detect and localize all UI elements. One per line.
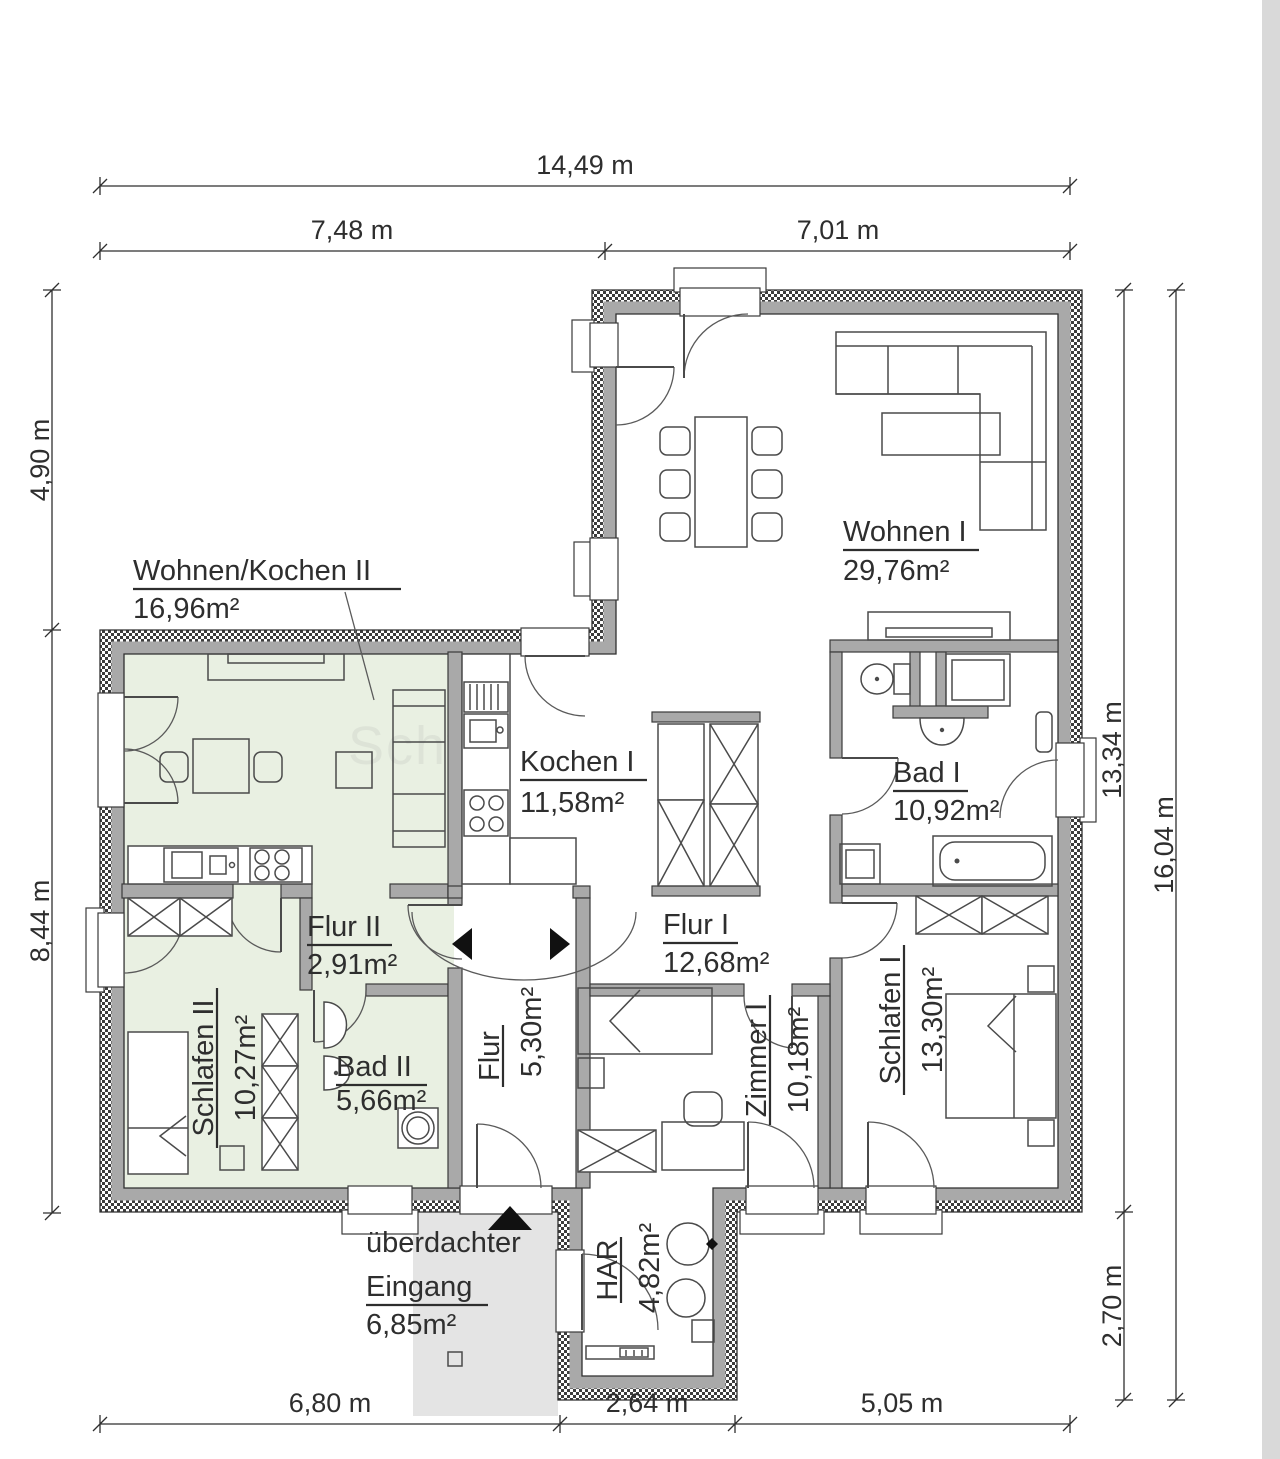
nightstand	[1028, 1120, 1054, 1146]
room-area-flur: 5,30m²	[516, 987, 548, 1078]
coffee-table	[882, 413, 1000, 455]
room-area-wohnen-1: 29,76m²	[843, 555, 950, 587]
utility-box	[692, 1320, 714, 1342]
room-label-bad-2: Bad II	[336, 1051, 412, 1083]
dim-right-lower: 2,70 m	[1097, 1265, 1127, 1348]
storage-shelf-unit	[652, 712, 760, 896]
kitchen1-exterior-door	[521, 628, 589, 656]
room-area-bad-1: 10,92m²	[893, 795, 1000, 827]
room-area-schlafen-2: 10,27m²	[230, 1014, 262, 1121]
side-door-opening	[590, 323, 618, 367]
room-label-eingang-1: überdachter	[366, 1227, 521, 1259]
dining-table	[695, 417, 747, 547]
har-door-opening	[556, 1250, 584, 1332]
water-tank	[667, 1223, 709, 1265]
wardrobe-schlafen2-top	[128, 898, 232, 936]
room-label-eingang-2: Eingang	[366, 1271, 472, 1303]
dim-right-total: 16,04 m	[1149, 796, 1179, 894]
floor-plan: Schw	[0, 0, 1280, 1459]
bathtub	[933, 836, 1052, 886]
room-label-wohnen-1: Wohnen I	[843, 516, 967, 548]
radiator	[1036, 712, 1052, 752]
room-label-flur: Flur	[474, 1031, 506, 1081]
page-edge-strip	[1262, 0, 1280, 1459]
window-schlafen2	[98, 913, 124, 987]
entry-markers	[452, 928, 570, 1230]
room-label-wohnen-kochen-2: Wohnen/Kochen II	[133, 555, 371, 587]
room-area-flur-2: 2,91m²	[307, 949, 398, 981]
dim-top-total: 14,49 m	[536, 150, 634, 180]
kitchen-counter-1	[462, 654, 510, 884]
schlafen1-exterior-door	[866, 1186, 936, 1214]
dim-bottom-right: 5,05 m	[861, 1388, 944, 1418]
nightstand	[1028, 966, 1054, 992]
room-area-eingang: 6,85m²	[366, 1309, 457, 1341]
dim-top-left: 7,48 m	[311, 215, 394, 245]
desk-chair	[684, 1092, 722, 1126]
floor-plan-page: Schw	[0, 0, 1280, 1459]
tv-sideboard	[868, 612, 1010, 640]
zimmer1-exterior-door	[746, 1186, 818, 1214]
water-tank	[667, 1279, 705, 1317]
zimmer1-furniture	[578, 988, 744, 1172]
wohnen1-furniture	[660, 332, 1046, 640]
dining-chairs	[660, 427, 782, 541]
room-label-har: HAR	[592, 1239, 624, 1300]
room-area-schlafen-1: 13,30m²	[917, 966, 949, 1073]
desk	[662, 1122, 744, 1170]
room-label-bad-1: Bad I	[893, 757, 961, 789]
bed-schlafen2	[128, 1032, 188, 1174]
dim-left-upper: 4,90 m	[25, 419, 55, 502]
toilet-tank	[894, 664, 910, 694]
room-label-flur-1: Flur I	[663, 909, 729, 941]
bed	[578, 988, 712, 1054]
shower-bad1	[946, 654, 1010, 706]
room-area-bad-2: 5,66m²	[336, 1085, 427, 1117]
tv	[886, 628, 992, 637]
room-label-schlafen-1: Schlafen I	[875, 956, 907, 1085]
window-upper-wing	[590, 538, 618, 600]
room-label-kochen-1: Kochen I	[520, 746, 634, 778]
room-label-schlafen-2: Schlafen II	[188, 999, 220, 1136]
room-area-wohnen-kochen-2: 16,96m²	[133, 593, 240, 625]
terrace-door-opening	[680, 288, 760, 316]
front-door-opening	[460, 1186, 552, 1214]
kitchen-counter-unit2	[128, 846, 312, 884]
french-door-unit2	[98, 693, 124, 807]
corner-sofa	[836, 332, 1046, 530]
dim-right-main: 13,34 m	[1097, 701, 1127, 799]
wardrobe-column	[262, 1014, 298, 1170]
kitchen-counter-1-corner	[510, 838, 576, 884]
room-label-flur-2: Flur II	[307, 911, 381, 943]
room-area-zimmer-1: 10,18m²	[783, 1006, 815, 1113]
dim-top-right: 7,01 m	[797, 215, 880, 245]
room-label-zimmer-1: Zimmer I	[741, 1003, 773, 1117]
dim-bottom-left: 6,80 m	[289, 1388, 372, 1418]
dim-bottom-middle: 2,64 m	[606, 1388, 689, 1418]
window-bad1	[1056, 743, 1084, 817]
room-area-flur-1: 12,68m²	[663, 947, 770, 979]
room-area-kochen-1: 11,58m²	[520, 787, 625, 819]
unit1-entry-arrow-icon	[550, 928, 570, 960]
unit2-entry-arrow-icon	[452, 928, 472, 960]
window-bad2	[348, 1186, 412, 1214]
room-area-har: 4,82m²	[634, 1223, 666, 1314]
dim-left-lower: 8,44 m	[25, 880, 55, 963]
